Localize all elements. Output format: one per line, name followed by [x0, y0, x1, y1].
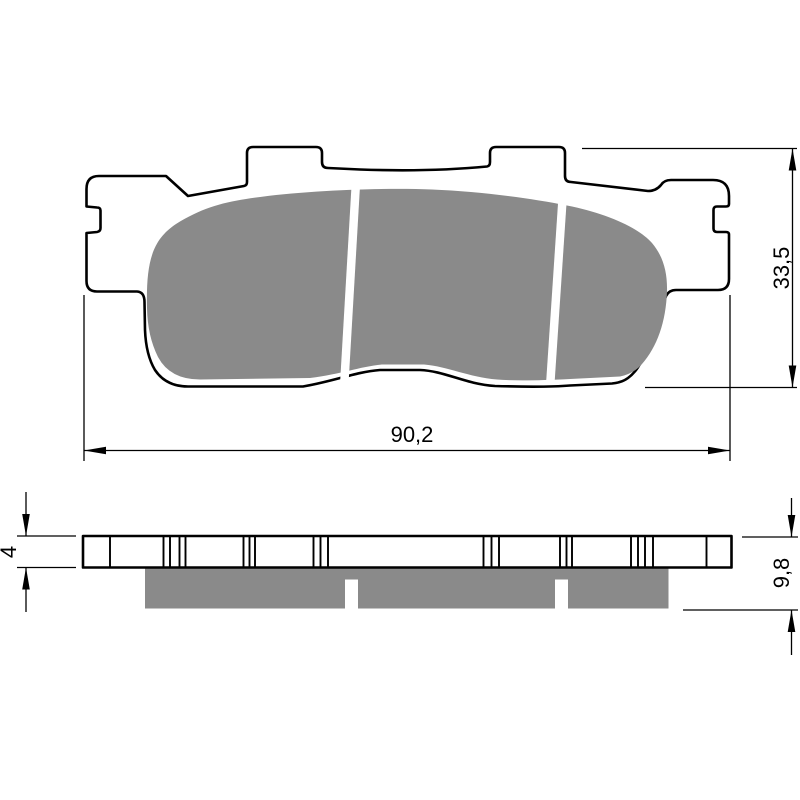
brake-pad-technical-drawing: 90,2 33,5 4 9,8	[0, 0, 800, 800]
side-view	[83, 536, 732, 611]
dimension-width-label: 90,2	[391, 422, 434, 447]
technical-drawing-canvas: 90,2 33,5 4 9,8	[0, 0, 800, 800]
arrowhead-bottom	[788, 610, 796, 632]
arrowhead-top	[22, 514, 30, 536]
arrowhead-bottom	[22, 568, 30, 590]
dimension-overall-thickness-label: 9,8	[769, 558, 794, 589]
arrowhead-top	[788, 515, 796, 537]
friction-material-profile	[145, 567, 669, 609]
groove-notch-right	[555, 580, 568, 611]
dimension-overall-thickness: 9,8	[683, 498, 798, 655]
friction-material-plan	[147, 189, 667, 380]
dimension-backplate-thickness-label: 4	[0, 546, 21, 558]
dimension-backplate-thickness: 4	[0, 492, 76, 612]
top-view	[87, 147, 730, 387]
groove-notch-left	[345, 580, 358, 611]
arrowhead-bottom	[789, 366, 797, 388]
arrowhead-left	[84, 447, 106, 455]
arrowhead-top	[789, 149, 797, 171]
dimension-height-label: 33,5	[769, 247, 794, 290]
arrowhead-right	[708, 447, 730, 455]
